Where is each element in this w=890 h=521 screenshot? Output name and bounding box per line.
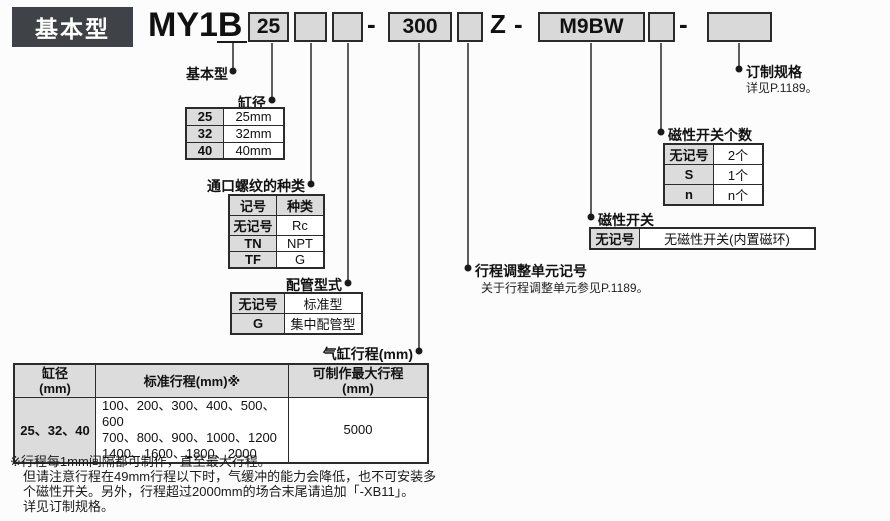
switch-count-table: 无记号 2个 S 1个 n n个 (663, 143, 764, 206)
table-row: 40 40mm (186, 142, 284, 159)
header-cell: 记号 (229, 195, 277, 216)
code-cell: S (664, 165, 714, 185)
dash-separator: - (679, 9, 688, 40)
piping-code-box (332, 12, 363, 42)
table-row: TN NPT (229, 236, 324, 252)
port-thread-label: 通口螺纹的种类 (200, 176, 305, 196)
code-cell: TF (229, 252, 277, 269)
code-cell: TN (229, 236, 277, 252)
made-to-order-note: 详见P.1189。 (746, 79, 818, 96)
table-row: S 1个 (664, 165, 763, 185)
value-cell: 无磁性开关(内置磁环) (640, 228, 816, 249)
value-cell: 40mm (224, 142, 285, 159)
header-cell: 种类 (277, 195, 325, 216)
value-cell: 32mm (224, 125, 285, 142)
table-row: TF G (229, 252, 324, 269)
auto-switch-table: 无记号 无磁性开关(内置磁环) (589, 227, 816, 250)
suffix-z: Z (490, 9, 506, 40)
auto-switch-code-box: M9BW (538, 12, 645, 42)
stroke-adjuster-label: 行程调整单元记号 (475, 261, 587, 281)
cylinder-stroke-label: 气缸行程(mm) (310, 344, 413, 364)
table-row: 无记号 2个 (664, 144, 763, 165)
switch-count-code-box (648, 12, 675, 42)
value-cell: Rc (277, 216, 325, 236)
piping-type-table: 无记号 标准型 G 集中配管型 (230, 292, 363, 335)
stroke-line: 700、800、900、1000、1200 (102, 430, 285, 446)
table-row: G 集中配管型 (231, 314, 362, 335)
header-cell: 标准行程(mm)※ (96, 364, 289, 397)
value-cell: 1个 (714, 165, 764, 185)
dash-separator: - (514, 9, 523, 40)
table-row: n n个 (664, 185, 763, 206)
table-row: 25 25mm (186, 108, 284, 125)
stroke-adjuster-note: 关于行程调整单元参见P.1189。 (481, 279, 649, 296)
header-cell: 可制作最大行程 (mm) (289, 364, 429, 397)
code-cell: 25 (186, 108, 224, 125)
value-cell: 集中配管型 (285, 314, 363, 335)
code-cell: 无记号 (590, 228, 640, 249)
code-cell: n (664, 185, 714, 206)
table-header-row: 缸径 (mm) 标准行程(mm)※ 可制作最大行程 (mm) (14, 364, 428, 397)
value-cell: NPT (277, 236, 325, 252)
code-cell: 无记号 (231, 293, 285, 314)
stroke-line: 100、200、300、400、500、600 (102, 398, 285, 430)
value-cell: n个 (714, 185, 764, 206)
value-cell: 2个 (714, 144, 764, 165)
stroke-adjuster-code-box (457, 12, 483, 42)
port-thread-code-box (294, 12, 327, 42)
value-cell: 25mm (224, 108, 285, 125)
footnote-line: 详见订制规格。 (23, 496, 114, 515)
bore-code-box: 25 (248, 12, 289, 42)
port-thread-table: 记号 种类 无记号 Rc TN NPT TF G (228, 194, 325, 269)
switch-count-label: 磁性开关个数 (668, 125, 752, 145)
code-cell: 无记号 (229, 216, 277, 236)
bore-table: 25 25mm 32 32mm 40 40mm (185, 107, 285, 160)
basic-type-badge: 基本型 (12, 7, 133, 47)
table-row: 无记号 标准型 (231, 293, 362, 314)
code-cell: 无记号 (664, 144, 714, 165)
series-underline (217, 41, 247, 43)
basic-type-label: 基本型 (150, 64, 228, 84)
value-cell: 标准型 (285, 293, 363, 314)
stroke-code-box: 300 (388, 12, 452, 42)
table-row: 32 32mm (186, 125, 284, 142)
value-cell: G (277, 252, 325, 269)
table-row: 无记号 Rc (229, 216, 324, 236)
max-stroke-cell: 5000 (289, 397, 429, 463)
series-code: MY1B (148, 6, 242, 45)
dash-separator: - (367, 9, 376, 40)
made-to-order-code-box (707, 12, 772, 42)
code-cell: 32 (186, 125, 224, 142)
code-cell: G (231, 314, 285, 335)
code-cell: 40 (186, 142, 224, 159)
header-cell: 缸径 (mm) (14, 364, 96, 397)
stroke-table: 缸径 (mm) 标准行程(mm)※ 可制作最大行程 (mm) 25、32、40 … (13, 363, 429, 464)
table-row: 无记号 无磁性开关(内置磁环) (590, 228, 815, 249)
table-header-row: 记号 种类 (229, 195, 324, 216)
order-code-diagram: 基本型 MY1B 25 - 300 Z - M9BW - 基本型 缸径 通口螺纹… (0, 0, 890, 521)
